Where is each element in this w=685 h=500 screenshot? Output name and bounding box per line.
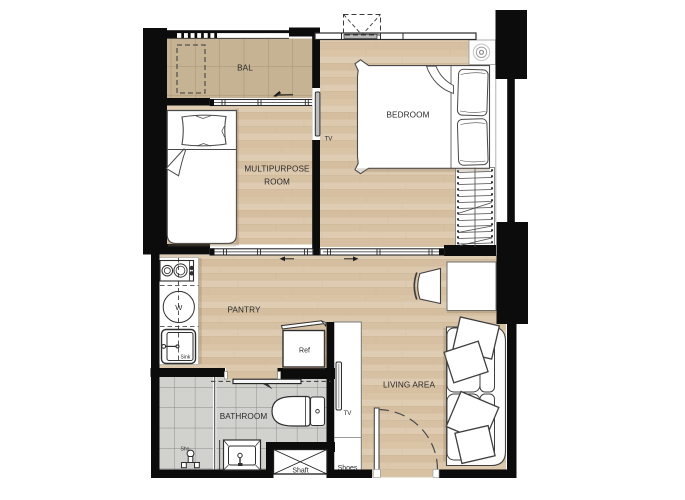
svg-text:Sink: Sink: [181, 355, 191, 361]
svg-text:BEDROOM: BEDROOM: [386, 111, 429, 120]
svg-text:TV: TV: [344, 410, 353, 417]
svg-text:BATHROOM: BATHROOM: [220, 412, 268, 421]
svg-text:W: W: [175, 303, 183, 312]
svg-text:LIVING AREA: LIVING AREA: [383, 381, 436, 390]
svg-text:Shoes: Shoes: [338, 465, 358, 472]
svg-text:Sho.: Sho.: [181, 447, 191, 453]
svg-text:Shaft: Shaft: [292, 468, 308, 475]
svg-text:BAL: BAL: [237, 64, 253, 73]
svg-text:MULTIPURPOSE: MULTIPURPOSE: [244, 165, 310, 174]
svg-text:Ref: Ref: [299, 348, 310, 355]
svg-text:ROOM: ROOM: [264, 178, 290, 187]
svg-text:PANTRY: PANTRY: [227, 306, 260, 315]
svg-text:TV: TV: [325, 136, 334, 143]
